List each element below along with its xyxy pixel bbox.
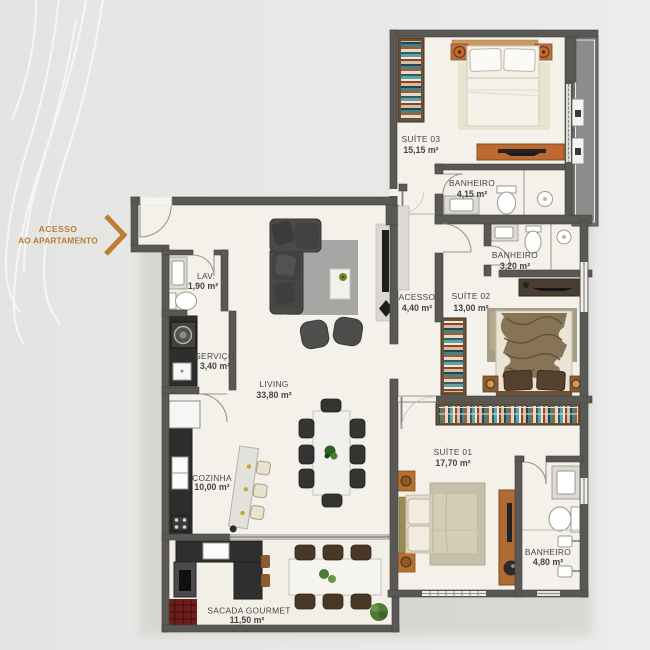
svg-text:13,00 m²: 13,00 m²	[453, 303, 488, 313]
svg-text:LIVING: LIVING	[259, 379, 288, 389]
svg-text:SERVIÇO: SERVIÇO	[195, 351, 235, 361]
svg-text:ACESSO: ACESSO	[39, 224, 78, 234]
svg-text:4,40 m²: 4,40 m²	[402, 303, 432, 313]
svg-text:33,80 m²: 33,80 m²	[256, 390, 291, 400]
svg-text:3,40 m²: 3,40 m²	[200, 361, 230, 371]
svg-text:15,15 m²: 15,15 m²	[403, 145, 438, 155]
svg-text:SACADA GOURMET: SACADA GOURMET	[207, 606, 290, 616]
svg-text:17,70 m²: 17,70 m²	[435, 458, 470, 468]
svg-text:SUÍTE 02: SUÍTE 02	[452, 291, 491, 301]
svg-text:1,90 m²: 1,90 m²	[188, 281, 218, 291]
svg-text:10,00 m²: 10,00 m²	[194, 482, 229, 492]
svg-text:4,80 m²: 4,80 m²	[533, 557, 563, 567]
svg-text:11,50 m²: 11,50 m²	[230, 615, 265, 625]
svg-text:LAV.: LAV.	[197, 271, 215, 281]
svg-text:SUÍTE 03: SUÍTE 03	[402, 134, 441, 144]
svg-text:ACESSO: ACESSO	[399, 292, 436, 302]
svg-text:4,15 m²: 4,15 m²	[457, 189, 487, 199]
svg-text:AO APARTAMENTO: AO APARTAMENTO	[18, 236, 98, 246]
svg-text:BANHEIRO: BANHEIRO	[525, 547, 571, 557]
svg-text:SUÍTE 01: SUÍTE 01	[434, 447, 473, 457]
svg-text:3,20 m²: 3,20 m²	[500, 261, 530, 271]
svg-text:BANHEIRO: BANHEIRO	[492, 250, 538, 260]
svg-text:BANHEIRO: BANHEIRO	[449, 178, 495, 188]
